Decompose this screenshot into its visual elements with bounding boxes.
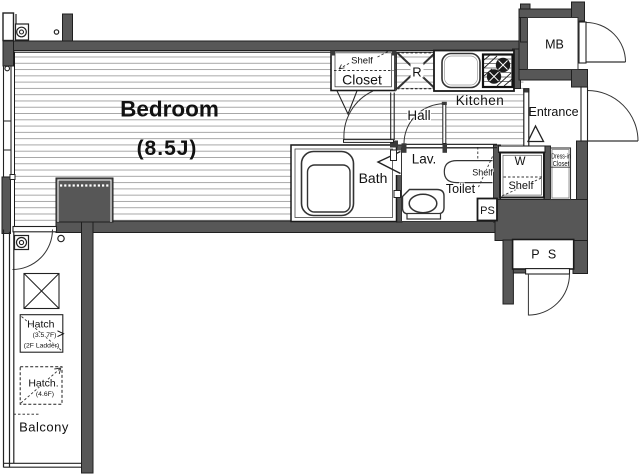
svg-text:P S: P S	[531, 248, 558, 262]
svg-text:Hall: Hall	[407, 108, 430, 123]
svg-text:Hatch: Hatch	[27, 319, 55, 331]
svg-text:Bedroom: Bedroom	[120, 97, 219, 122]
svg-text:Bath: Bath	[359, 170, 388, 186]
svg-text:Kitchen: Kitchen	[456, 93, 505, 108]
svg-text:(8.5J): (8.5J)	[137, 137, 198, 160]
svg-text:Hatch.: Hatch.	[28, 378, 58, 390]
svg-text:Toilet: Toilet	[446, 182, 476, 196]
svg-text:MB: MB	[545, 38, 564, 52]
svg-text:Shelf: Shelf	[351, 56, 373, 67]
svg-text:Closet: Closet	[553, 159, 570, 168]
svg-text:Closet: Closet	[342, 72, 382, 88]
svg-text:(3.5.7F): (3.5.7F)	[33, 332, 57, 339]
svg-text:Shelf: Shelf	[472, 168, 493, 178]
svg-text:Lav.: Lav.	[412, 151, 437, 166]
svg-text:W: W	[515, 156, 526, 168]
svg-text:(2F Ladder): (2F Ladder)	[24, 343, 60, 350]
svg-text:Shelf: Shelf	[508, 180, 534, 192]
svg-text:R: R	[412, 65, 421, 80]
svg-text:Entrance: Entrance	[528, 105, 578, 119]
svg-text:PS: PS	[480, 205, 495, 217]
svg-text:(4.6F): (4.6F)	[36, 391, 54, 398]
svg-text:Balcony: Balcony	[19, 420, 69, 435]
